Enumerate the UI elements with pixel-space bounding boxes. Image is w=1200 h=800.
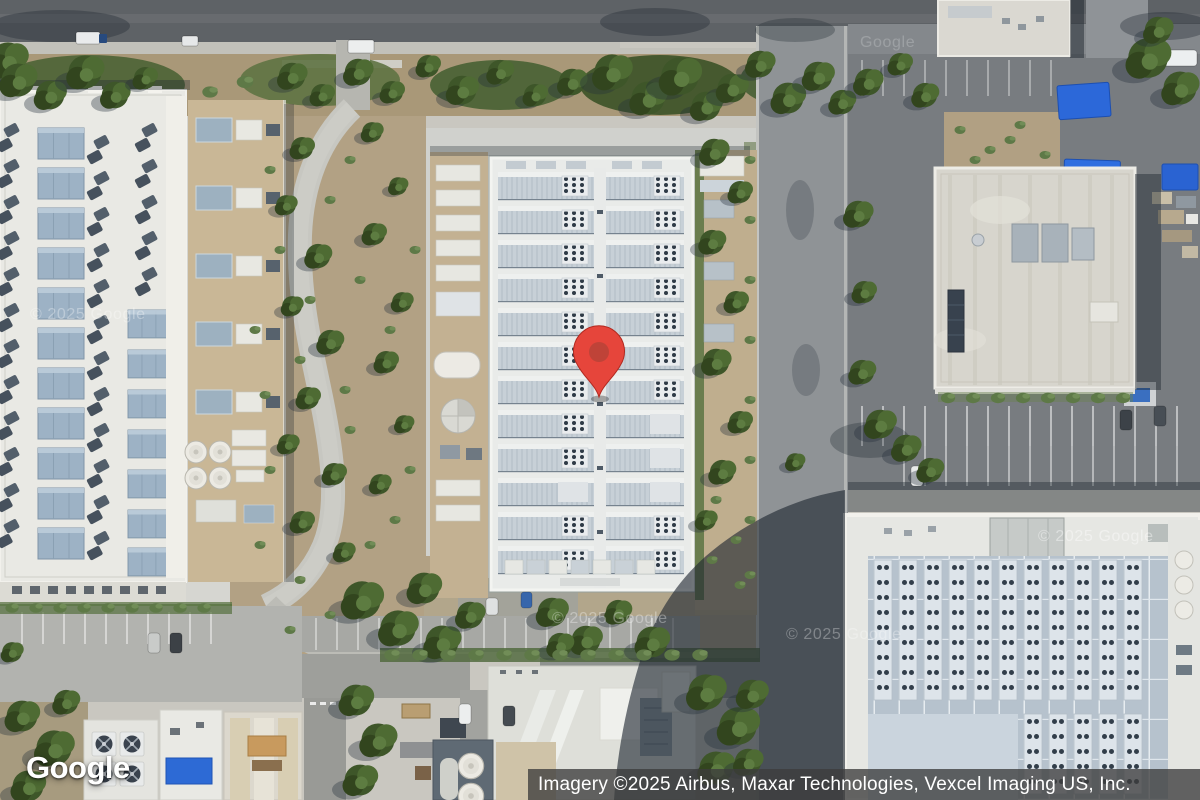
left-building-complex [0, 86, 286, 616]
satellite-map[interactable]: © 2025 Google Google © 2025 Google © 202… [0, 0, 1200, 800]
attribution-text: Imagery ©2025 Airbus, Maxar Technologies… [538, 774, 1131, 795]
far-top-right-building [938, 0, 1084, 58]
google-logo[interactable]: Google [26, 750, 130, 786]
top-right-building [934, 168, 1161, 402]
aerial-imagery [0, 0, 1200, 800]
bottom-right-building [845, 515, 1200, 800]
attribution-bar: Imagery ©2025 Airbus, Maxar Technologies… [528, 769, 1200, 800]
